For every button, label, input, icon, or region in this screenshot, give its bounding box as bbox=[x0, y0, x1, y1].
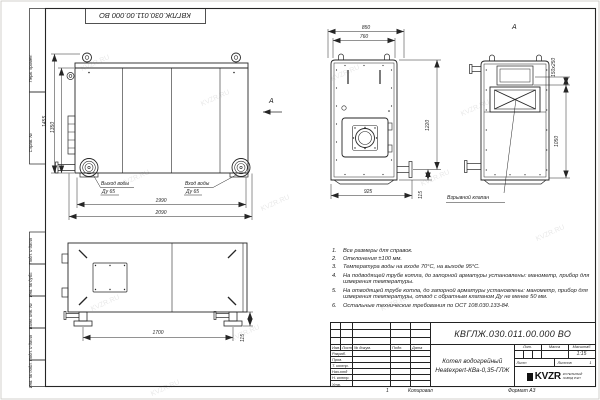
rear-view-title: А bbox=[512, 24, 517, 31]
side-view-drawing bbox=[51, 53, 282, 220]
note-number: 5. bbox=[332, 288, 343, 301]
sig-role: Пров. bbox=[331, 357, 353, 362]
doc-number-top: КВГЛЖ.030.011.00.000 ВО bbox=[85, 9, 205, 23]
sheets-label: Листов bbox=[558, 360, 572, 365]
note-item: 1. Все размеры для справок. bbox=[332, 248, 592, 255]
note-text: Все размеры для справок. bbox=[343, 248, 592, 255]
sig-role: Утв. bbox=[331, 381, 353, 386]
note-item: 6. Остальные технические требования по О… bbox=[332, 303, 592, 310]
signature-table: Изм. Лист № докум. Подп. Дата Разраб. Пр… bbox=[331, 345, 431, 387]
dim-top-inner: 760 bbox=[354, 35, 374, 40]
dim-rear-height: 1050 bbox=[555, 136, 560, 147]
sheets-cell: Листов 1 bbox=[555, 359, 595, 366]
top-view-dimensions bbox=[83, 312, 253, 341]
front-view-dimensions bbox=[328, 29, 441, 199]
sig-role: Н. контр. bbox=[331, 375, 353, 380]
margin-label: Справ. № bbox=[29, 133, 33, 152]
note-item: 4. На подводящей трубе котла, до запорно… bbox=[332, 273, 592, 286]
front-view-drawing bbox=[328, 29, 441, 199]
note-item: 5. На отводящей трубе котла, до запорной… bbox=[332, 288, 592, 301]
note-text: Остальные технические требования по ОСТ … bbox=[343, 303, 592, 310]
rear-view-drawing bbox=[446, 55, 570, 203]
dim-chimney: 150х250 bbox=[552, 58, 557, 77]
sig-role: Разраб. bbox=[331, 351, 353, 356]
dim-height-inner: 1350 bbox=[51, 122, 56, 133]
water-outlet-dn: Ду 65 bbox=[102, 190, 115, 195]
note-number: 2. bbox=[332, 256, 343, 263]
scale-cell: Масштаб 1:15 bbox=[569, 345, 595, 358]
note-number: 4. bbox=[332, 273, 343, 286]
col-podp: Подп. bbox=[391, 345, 411, 350]
sig-role: Нач.отд bbox=[331, 369, 353, 374]
water-inlet-label: Вход воды bbox=[185, 182, 209, 187]
dim-front-height: 1220 bbox=[426, 120, 431, 131]
note-item: 2. Отклонения ±100 мм. bbox=[332, 256, 592, 263]
revision-table bbox=[331, 323, 431, 344]
company-logo: KVZR КОТЕЛЬНЫЙ ЗАВОД РЭП bbox=[515, 367, 595, 387]
margin-label: Инв. № подл. bbox=[29, 362, 33, 388]
title-block: КВГЛЖ.030.011.00.000 ВО Изм. Лист № доку… bbox=[330, 322, 596, 387]
scale-value: 1:15 bbox=[569, 351, 595, 358]
dim-top-outer: 850 bbox=[356, 26, 376, 31]
mass-cell: Масса bbox=[542, 345, 569, 358]
note-text: Температура воды на входе 70°С, на выход… bbox=[343, 264, 592, 271]
explosion-valve-label: Взрывной клапан bbox=[447, 196, 489, 201]
logo-mark-icon bbox=[527, 373, 533, 381]
note-number: 6. bbox=[332, 303, 343, 310]
water-outlet-label: Выход воды bbox=[101, 182, 129, 187]
logo-sub-line2: ЗАВОД РЭП bbox=[563, 377, 582, 381]
margin-label: Подп. и дата bbox=[29, 238, 33, 264]
water-inlet-dn: Ду 65 bbox=[186, 190, 199, 195]
note-text: На отводящей трубе котла, до запорной ар… bbox=[343, 288, 592, 301]
dim-width-outer: 2090 bbox=[146, 211, 176, 216]
format-label: Формат А3 bbox=[508, 389, 535, 394]
dim-feet-span: 1700 bbox=[143, 331, 173, 336]
col-list: Лист bbox=[341, 345, 353, 350]
margin-label: Взам. инв. № bbox=[29, 303, 33, 329]
product-title-line2: Heatexpert-КВа-0,35-ГЛЖ bbox=[435, 367, 509, 374]
sig-role: Т. контр. bbox=[331, 363, 353, 368]
dim-foot-offset: 115 bbox=[241, 334, 246, 342]
sheet-label: Лист bbox=[515, 359, 555, 366]
note-number: 1. bbox=[332, 248, 343, 255]
doc-number: КВГЛЖ.030.011.00.000 ВО bbox=[431, 323, 595, 344]
lit-cell: Лит. bbox=[515, 345, 542, 358]
note-number: 3. bbox=[332, 264, 343, 271]
copied-label: Копировал bbox=[408, 389, 433, 394]
margin-label: Подп. и дата bbox=[29, 335, 33, 361]
dim-front-bottom: 925 bbox=[358, 190, 378, 195]
col-data: Дата bbox=[411, 345, 430, 350]
drawing-sheet: KVZR.RU KVZR.RU KVZR.RU KVZR.RU KVZR.RU … bbox=[0, 0, 600, 400]
view-arrow-label: А bbox=[269, 98, 274, 105]
logo-text: KVZR bbox=[535, 371, 561, 382]
fold-mark: 1 bbox=[386, 389, 389, 394]
dim-flange-offset: 115 bbox=[419, 191, 424, 199]
side-view-dimensions bbox=[51, 54, 282, 220]
dim-width-inner: 1990 bbox=[146, 199, 176, 204]
margin-label: Перв. примен. bbox=[29, 54, 33, 82]
top-view-drawing bbox=[62, 243, 253, 341]
technical-notes: 1. Все размеры для справок. 2. Отклонени… bbox=[332, 248, 592, 311]
sheets-value: 1 bbox=[589, 360, 591, 365]
signature-row: Утв. bbox=[331, 381, 430, 386]
note-text: Отклонения ±100 мм. bbox=[343, 256, 592, 263]
note-text: На подводящей трубе котла, до запорной а… bbox=[343, 273, 592, 286]
margin-label: Инв. № дубл. bbox=[29, 271, 33, 297]
col-izm: Изм. bbox=[331, 345, 341, 350]
col-dokum: № докум. bbox=[353, 345, 391, 350]
product-title: Котел водогрейный Heatexpert-КВа-0,35-ГЛ… bbox=[431, 345, 515, 387]
note-item: 3. Температура воды на входе 70°С, на вы… bbox=[332, 264, 592, 271]
dim-height-outer: 1455 bbox=[43, 116, 48, 127]
product-title-line1: Котел водогрейный bbox=[442, 358, 502, 365]
